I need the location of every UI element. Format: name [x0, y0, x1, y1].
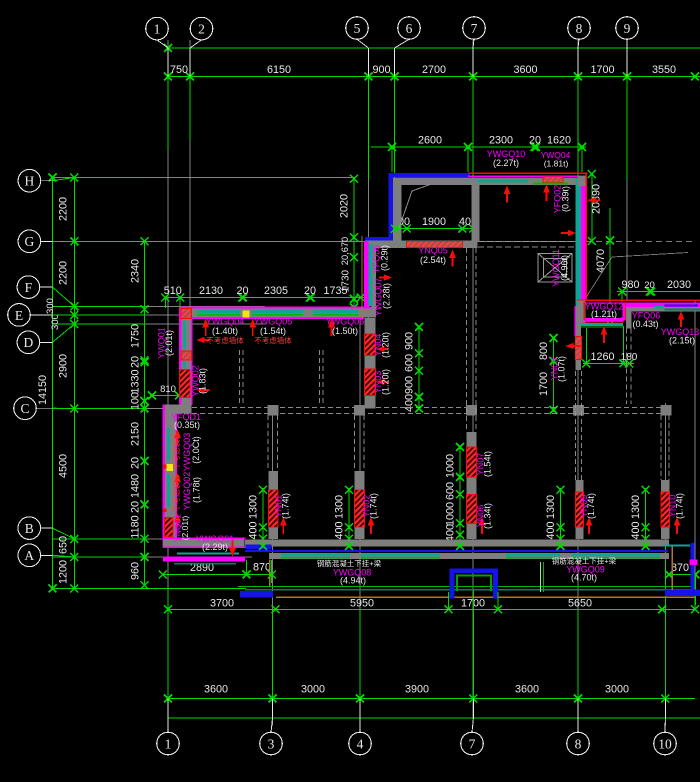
svg-text:1200: 1200: [58, 560, 70, 584]
svg-text:180: 180: [621, 352, 638, 363]
svg-text:(1.74t): (1.74t): [586, 493, 596, 519]
svg-text:3700: 3700: [210, 597, 234, 609]
svg-text:1700: 1700: [590, 64, 614, 76]
svg-text:YWGQ06: YWGQ06: [326, 317, 365, 327]
svg-text:(2.01t): (2.01t): [180, 516, 190, 541]
svg-text:20: 20: [130, 501, 142, 513]
svg-text:3000: 3000: [301, 683, 325, 695]
svg-text:(1.54t): (1.54t): [483, 451, 493, 477]
svg-text:6150: 6150: [267, 64, 291, 76]
svg-text:不考虑装修: 不考虑装修: [171, 474, 181, 512]
svg-text:400: 400: [248, 521, 260, 539]
svg-text:1300: 1300: [545, 495, 557, 519]
svg-text:7: 7: [469, 736, 476, 751]
svg-text:20: 20: [236, 285, 248, 297]
svg-text:(1.50t): (1.50t): [332, 326, 358, 336]
svg-text:20,670: 20,670: [340, 237, 350, 265]
svg-text:(1.20t): (1.20t): [381, 332, 391, 358]
svg-text:(1.83t): (1.83t): [198, 368, 208, 394]
svg-text:2200: 2200: [58, 197, 70, 221]
svg-text:(1.54t): (1.54t): [260, 326, 286, 336]
svg-text:400: 400: [404, 394, 416, 412]
svg-text:(1.21t): (1.21t): [591, 309, 617, 319]
svg-text:2150: 2150: [130, 422, 142, 446]
svg-text:(2.0Ct): (2.0Ct): [191, 436, 201, 464]
svg-text:3900: 3900: [405, 683, 429, 695]
svg-text:5650: 5650: [568, 597, 592, 609]
svg-text:(2.54t): (2.54t): [420, 255, 446, 265]
svg-text:(2.15t): (2.15t): [669, 336, 695, 346]
svg-text:(1.40t): (1.40t): [212, 326, 238, 336]
svg-text:20: 20: [304, 285, 316, 297]
svg-text:(2.01t): (2.01t): [164, 330, 174, 356]
svg-text:2: 2: [198, 21, 205, 36]
svg-text:YWGQ04: YWGQ04: [206, 317, 245, 327]
svg-text:(2.29t): (2.29t): [202, 542, 228, 552]
svg-text:400: 400: [334, 521, 346, 539]
svg-text:YWGQ05: YWGQ05: [254, 317, 293, 327]
svg-text:650: 650: [58, 536, 70, 554]
svg-text:14150: 14150: [37, 375, 49, 405]
svg-text:1330: 1330: [130, 369, 142, 393]
svg-text:(1.78t): (1.78t): [192, 477, 202, 503]
svg-text:300: 300: [45, 298, 56, 314]
svg-text:A: A: [24, 548, 34, 563]
svg-text:(0.43t): (0.43t): [632, 319, 658, 329]
svg-text:不考虑墙体: 不考虑墙体: [206, 335, 244, 345]
svg-text:B: B: [25, 521, 34, 536]
svg-text:1260: 1260: [590, 351, 614, 363]
svg-text:(1.20t): (1.20t): [381, 369, 391, 395]
svg-text:3600: 3600: [513, 64, 537, 76]
svg-text:20: 20: [529, 135, 541, 147]
svg-text:3550: 3550: [652, 64, 676, 76]
svg-text:(2.28t): (2.28t): [382, 283, 392, 309]
svg-text:2020: 2020: [339, 194, 351, 218]
svg-text:G: G: [25, 234, 35, 249]
svg-text:YWGQ02: YWGQ02: [182, 472, 192, 511]
svg-text:1900: 1900: [422, 216, 446, 228]
svg-text:2305: 2305: [264, 285, 288, 297]
svg-text:1300: 1300: [248, 495, 260, 519]
svg-text:1: 1: [154, 21, 161, 36]
svg-text:2340: 2340: [130, 259, 142, 283]
svg-text:2300: 2300: [489, 135, 513, 147]
svg-text:不考虑墙体: 不考虑墙体: [254, 335, 292, 345]
svg-text:870: 870: [253, 562, 271, 574]
svg-text:6: 6: [406, 21, 413, 36]
svg-text:900: 900: [372, 64, 390, 76]
svg-text:1000: 1000: [445, 502, 457, 526]
svg-text:510: 510: [164, 285, 182, 297]
svg-text:1300: 1300: [630, 495, 642, 519]
svg-text:2200: 2200: [58, 261, 70, 285]
svg-text:5: 5: [354, 21, 361, 36]
svg-text:10: 10: [658, 736, 672, 751]
svg-text:(1.74t): (1.74t): [675, 493, 685, 519]
svg-text:800: 800: [538, 342, 550, 360]
svg-text:2700: 2700: [422, 64, 446, 76]
svg-text:1700: 1700: [538, 372, 550, 396]
svg-text:钢筋混凝土下挂+梁: 钢筋混凝土下挂+梁: [317, 558, 382, 568]
svg-text:YNQ05: YNQ05: [418, 246, 448, 256]
svg-text:900: 900: [404, 332, 416, 350]
svg-text:1300: 1300: [334, 495, 346, 519]
svg-text:20: 20: [130, 356, 142, 368]
svg-text:2600: 2600: [418, 135, 442, 147]
svg-text:980: 980: [621, 279, 639, 291]
svg-text:D: D: [24, 335, 34, 350]
svg-text:C: C: [20, 401, 29, 416]
svg-text:(1.74t): (1.74t): [281, 493, 291, 519]
svg-text:4070: 4070: [595, 249, 607, 273]
svg-text:1180: 1180: [130, 515, 142, 538]
svg-text:5950: 5950: [350, 597, 374, 609]
svg-text:(1.81t): (1.81t): [544, 159, 569, 169]
svg-text:(4.94t): (4.94t): [340, 576, 366, 586]
svg-text:600: 600: [445, 482, 457, 500]
svg-text:(1.74t): (1.74t): [369, 493, 379, 519]
svg-text:(0.29t): (0.29t): [380, 245, 390, 271]
svg-text:1: 1: [165, 736, 172, 751]
svg-text:1750: 1750: [130, 324, 142, 348]
svg-text:1730: 1730: [341, 269, 352, 292]
svg-text:(0.35t): (0.35t): [174, 420, 200, 430]
svg-text:(4.70t): (4.70t): [571, 573, 597, 583]
svg-text:900: 900: [404, 376, 416, 394]
svg-text:不考虑装修: 不考虑装修: [171, 432, 181, 470]
svg-text:(2.27t): (2.27t): [493, 158, 519, 168]
svg-text:9: 9: [624, 21, 631, 36]
svg-text:960: 960: [130, 562, 142, 580]
svg-text:2130: 2130: [199, 285, 223, 297]
svg-text:1000: 1000: [445, 454, 457, 478]
svg-text:400: 400: [545, 521, 557, 539]
svg-text:7: 7: [471, 21, 478, 36]
svg-text:2030: 2030: [667, 279, 691, 291]
svg-text:8: 8: [576, 21, 583, 36]
svg-text:(1.34t): (1.34t): [483, 503, 493, 529]
svg-text:3: 3: [268, 736, 275, 751]
svg-text:H: H: [25, 174, 35, 189]
svg-text:2900: 2900: [58, 354, 70, 378]
svg-text:870: 870: [671, 562, 689, 574]
svg-text:4: 4: [357, 736, 364, 751]
svg-text:3600: 3600: [515, 683, 539, 695]
svg-text:F: F: [25, 280, 33, 295]
svg-text:3000: 3000: [605, 683, 629, 695]
svg-text:(0.39t): (0.39t): [561, 186, 571, 212]
svg-text:E: E: [15, 308, 23, 323]
svg-text:300: 300: [50, 314, 61, 330]
svg-text:1620: 1620: [547, 135, 571, 147]
svg-text:20: 20: [130, 457, 142, 469]
svg-text:1480: 1480: [130, 474, 142, 498]
svg-text:100: 100: [130, 392, 142, 410]
svg-text:20: 20: [644, 280, 655, 291]
svg-text:8: 8: [575, 736, 582, 751]
svg-text:810: 810: [160, 384, 176, 395]
svg-text:4500: 4500: [58, 454, 70, 478]
svg-text:400: 400: [630, 521, 642, 539]
svg-text:750: 750: [170, 64, 188, 76]
svg-text:3600: 3600: [204, 683, 228, 695]
svg-text:(1.07t): (1.07t): [557, 356, 567, 382]
svg-text:600: 600: [404, 354, 416, 372]
svg-text:(4.96t): (4.96t): [560, 255, 570, 281]
